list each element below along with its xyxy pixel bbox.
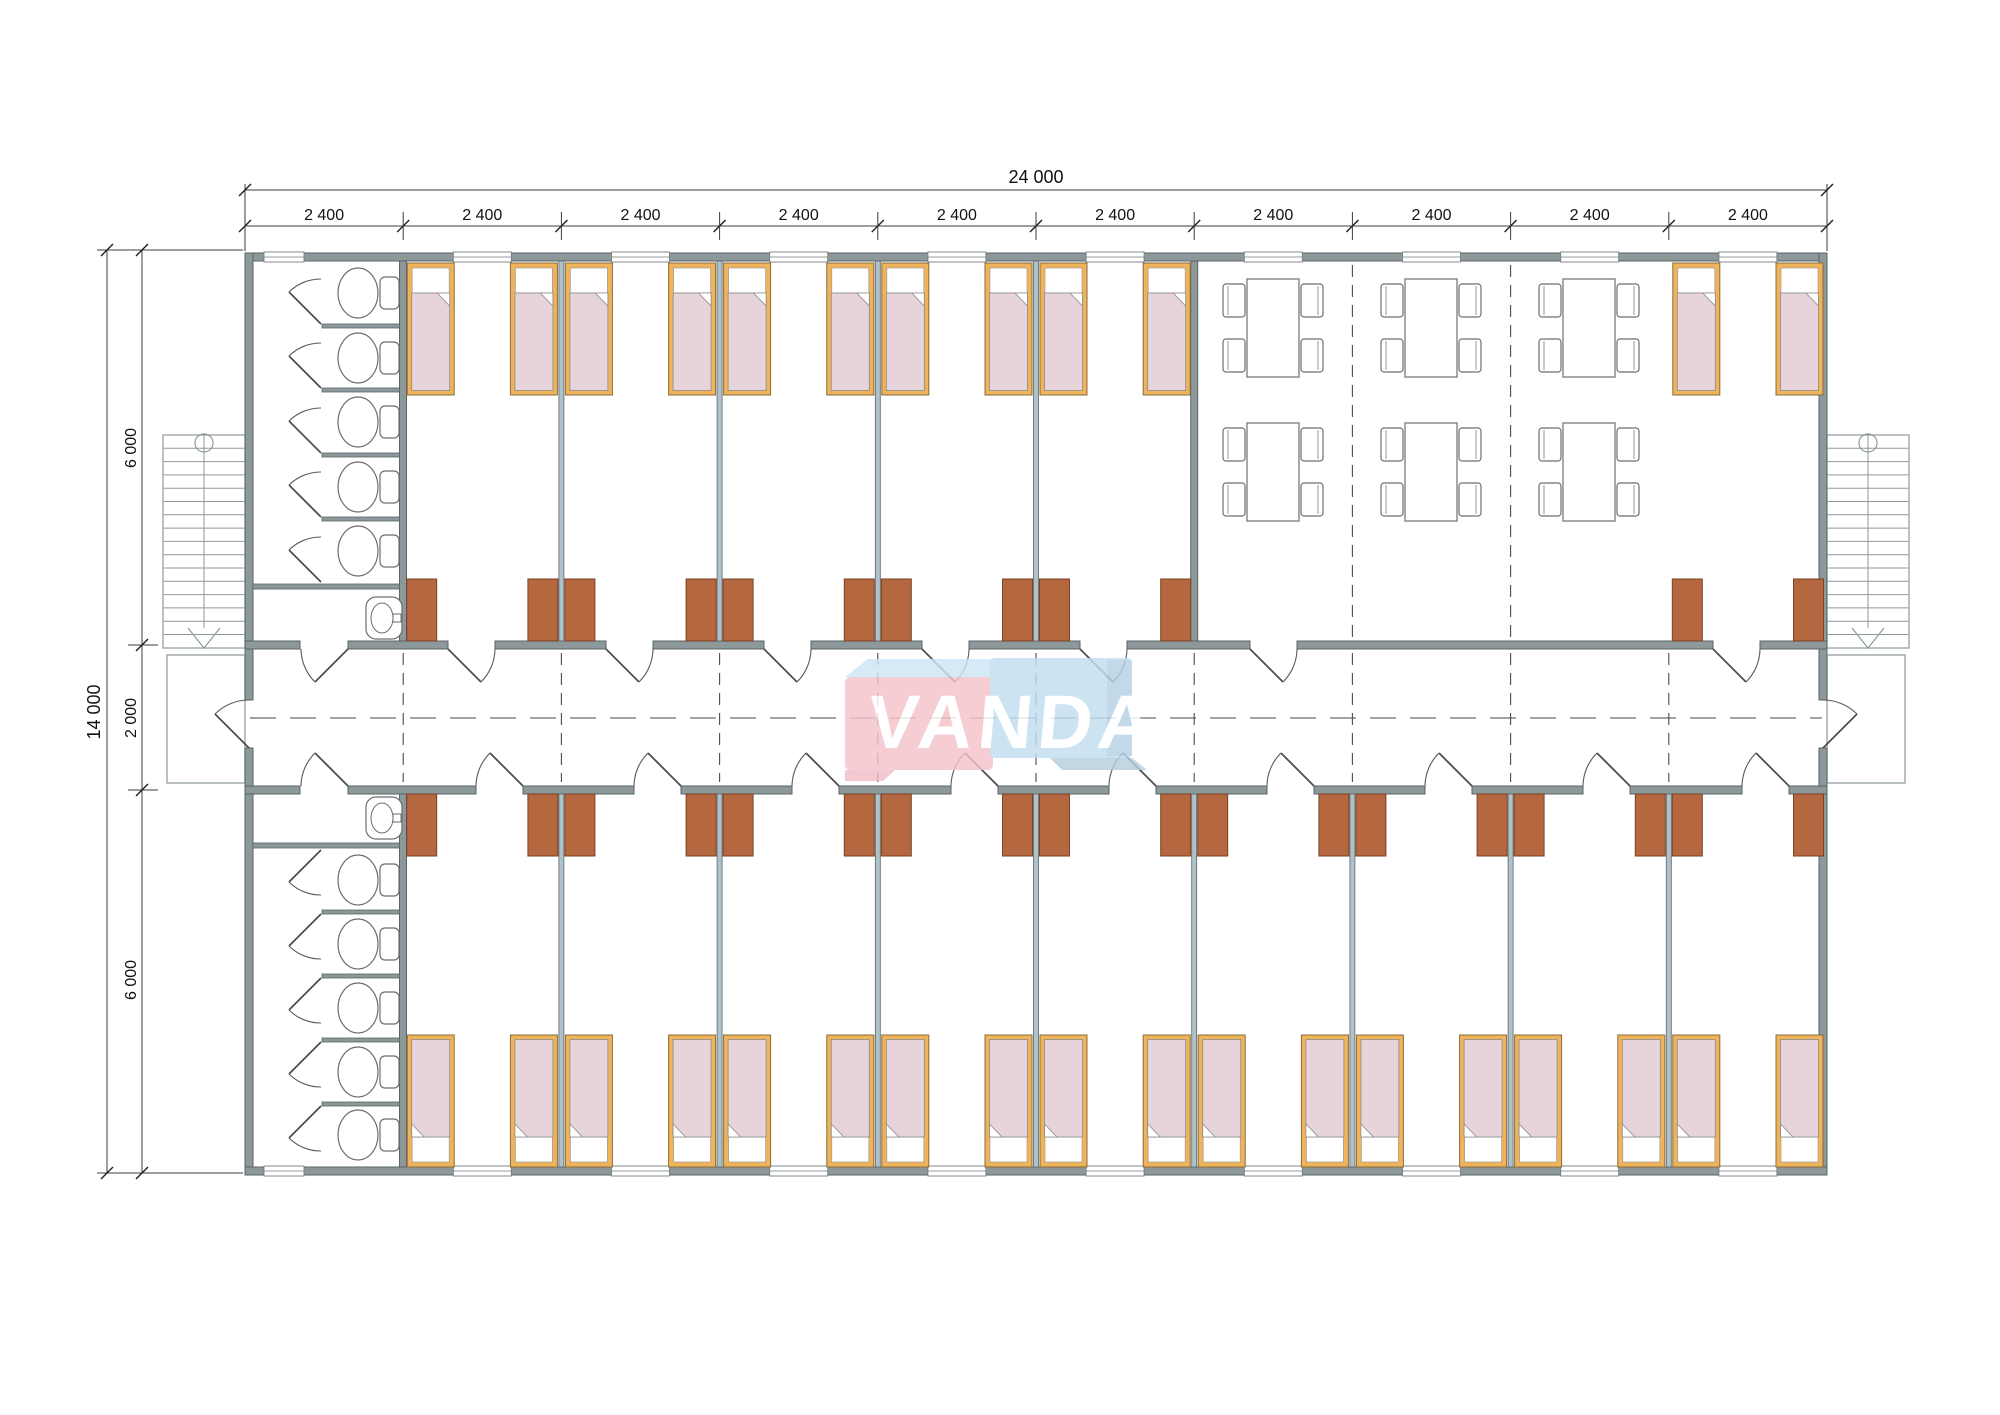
- bed: [1776, 263, 1823, 395]
- door-swing-arc: [1425, 753, 1439, 786]
- door-leaf: [490, 753, 523, 786]
- stall-wall: [253, 843, 400, 848]
- room-partition-bottom: [1034, 794, 1039, 1167]
- door-swing-arc: [289, 1010, 321, 1023]
- corridor-wall-bottom: [1314, 786, 1425, 794]
- wardrobe: [1794, 579, 1824, 641]
- corridor-wall-top: [495, 641, 606, 649]
- bed: [1673, 263, 1720, 395]
- door-leaf: [1823, 714, 1857, 748]
- wardrobe: [407, 579, 437, 641]
- outer-wall-left: [245, 748, 253, 1167]
- toilet: [338, 919, 399, 969]
- dining-table-set: [1539, 423, 1639, 521]
- wardrobe: [723, 579, 753, 641]
- corridor-wall-top: [1127, 641, 1250, 649]
- door-leaf: [1713, 649, 1746, 682]
- door-leaf: [289, 850, 321, 882]
- wardrobe: [1198, 794, 1228, 856]
- door-swing-arc: [1283, 649, 1297, 682]
- wardrobe: [1672, 579, 1702, 641]
- room-partition-top: [875, 261, 880, 641]
- door-leaf: [289, 421, 321, 453]
- corridor-wall-top: [653, 641, 764, 649]
- wardrobe: [844, 794, 874, 856]
- wardrobe: [565, 579, 595, 641]
- room-partition-bottom: [1508, 794, 1513, 1167]
- toilet: [338, 268, 399, 318]
- door-swing-arc: [634, 753, 648, 786]
- module-width-label: 2 400: [462, 207, 502, 224]
- stall-divider: [322, 453, 400, 457]
- wardrobe: [528, 794, 558, 856]
- door-swing-arc: [1267, 753, 1281, 786]
- toilet: [338, 397, 399, 447]
- room-partition-bottom: [1192, 794, 1197, 1167]
- toilet: [338, 526, 399, 576]
- bed: [1673, 1035, 1720, 1167]
- door-leaf: [289, 1042, 321, 1074]
- total-width-label: 24 000: [1008, 167, 1063, 187]
- door-leaf: [1281, 753, 1314, 786]
- door-leaf: [289, 550, 321, 582]
- toilet: [338, 1047, 399, 1097]
- bed: [1040, 1035, 1087, 1167]
- bed: [827, 1035, 874, 1167]
- logo-pink-tail: [845, 770, 895, 781]
- stall-wall: [253, 584, 400, 589]
- door-swing-arc: [301, 753, 315, 786]
- wardrobe: [407, 794, 437, 856]
- door-swing-arc: [289, 882, 321, 895]
- toilet: [338, 983, 399, 1033]
- logo-text: VANDA: [865, 680, 1162, 765]
- wardrobe: [844, 579, 874, 641]
- wardrobe: [881, 579, 911, 641]
- corridor-wall-bottom: [1472, 786, 1583, 794]
- stair-direction-arrow: [188, 628, 220, 648]
- wardrobe: [1161, 794, 1191, 856]
- outer-wall-left: [245, 253, 253, 700]
- module-width-label: 2 400: [1570, 207, 1610, 224]
- corridor-wall-top: [348, 641, 448, 649]
- door-swing-arc: [639, 649, 653, 682]
- bathroom-wall-top: [400, 261, 407, 641]
- stall-divider: [322, 1102, 400, 1106]
- door-swing-arc: [476, 753, 490, 786]
- door-leaf: [1250, 649, 1283, 682]
- wardrobe: [528, 579, 558, 641]
- door-swing-arc: [792, 753, 806, 786]
- bathroom-wall-bottom: [400, 794, 407, 1167]
- floor-plan-page: 24 000 14 000 6 000 2 000 6 000 2 4002 4…: [0, 0, 2000, 1415]
- door-leaf: [289, 1106, 321, 1138]
- corridor-wall-bottom: [998, 786, 1109, 794]
- total-height-label: 14 000: [84, 684, 104, 739]
- logo-pink-bevel: [845, 659, 992, 677]
- corridor-wall-top: [1760, 641, 1827, 649]
- door-swing-arc: [289, 472, 321, 485]
- door-leaf: [289, 914, 321, 946]
- stall-divider: [322, 974, 400, 978]
- door-swing-arc: [289, 343, 321, 356]
- upper-wing-label: 6 000: [123, 428, 140, 468]
- door-leaf: [289, 485, 321, 517]
- door-leaf: [448, 649, 481, 682]
- dining-table-set: [1223, 423, 1323, 521]
- module-width-label: 2 400: [1728, 207, 1768, 224]
- dining-table-set: [1223, 279, 1323, 377]
- dining-table-set: [1381, 423, 1481, 521]
- wardrobe: [686, 579, 716, 641]
- door-leaf: [289, 356, 321, 388]
- stall-divider: [322, 517, 400, 521]
- door-leaf: [315, 753, 348, 786]
- dining-wall: [1191, 261, 1198, 641]
- entrance-porch-left: [167, 655, 245, 783]
- corridor-wall-bottom: [681, 786, 792, 794]
- door-swing-arc: [1823, 700, 1857, 714]
- bed: [724, 263, 771, 395]
- toilet: [338, 462, 399, 512]
- lower-wing-label: 6 000: [123, 960, 140, 1000]
- door-swing-arc: [289, 279, 321, 292]
- bed: [1460, 1035, 1507, 1167]
- bed: [510, 263, 557, 395]
- wardrobe: [1161, 579, 1191, 641]
- door-leaf: [806, 753, 839, 786]
- door-leaf: [606, 649, 639, 682]
- door-swing-arc: [1746, 649, 1760, 682]
- door-swing-arc: [1583, 753, 1597, 786]
- corridor-wall-top: [245, 641, 300, 649]
- wardrobe: [1319, 794, 1349, 856]
- wardrobe: [1635, 794, 1665, 856]
- wardrobe: [1003, 579, 1033, 641]
- wardrobe: [1672, 794, 1702, 856]
- room-partition-top: [1034, 261, 1039, 641]
- entrance-porch-right: [1827, 655, 1905, 783]
- module-width-label: 2 400: [620, 207, 660, 224]
- bed: [407, 1035, 454, 1167]
- wardrobe: [1514, 794, 1544, 856]
- bed: [1040, 263, 1087, 395]
- toilet: [338, 855, 399, 905]
- wardrobe: [723, 794, 753, 856]
- module-width-label: 2 400: [1095, 207, 1135, 224]
- wardrobe: [1477, 794, 1507, 856]
- bed: [827, 263, 874, 395]
- door-leaf: [1439, 753, 1472, 786]
- sink: [366, 597, 402, 639]
- room-partition-top: [717, 261, 722, 641]
- bed: [565, 1035, 612, 1167]
- door-leaf: [215, 714, 249, 748]
- bed: [985, 1035, 1032, 1167]
- sanitary-fixtures: [338, 268, 402, 1160]
- room-partition-bottom: [717, 794, 722, 1167]
- room-partition-bottom: [559, 794, 564, 1167]
- wardrobe: [881, 794, 911, 856]
- door-swing-arc: [1742, 753, 1756, 786]
- bed: [724, 1035, 771, 1167]
- bed: [1776, 1035, 1823, 1167]
- room-partition-bottom: [1350, 794, 1355, 1167]
- bed: [407, 263, 454, 395]
- logo-watermark: VANDA: [845, 658, 1161, 781]
- door-swing-arc: [215, 700, 249, 714]
- bed: [669, 1035, 716, 1167]
- bed: [510, 1035, 557, 1167]
- bed: [1618, 1035, 1665, 1167]
- corridor-wall-bottom: [523, 786, 634, 794]
- door-swing-arc: [289, 946, 321, 959]
- toilet: [338, 1110, 399, 1160]
- stall-divider: [322, 1038, 400, 1042]
- door-swing-arc: [289, 537, 321, 550]
- dining-area: [1223, 279, 1639, 521]
- bed: [1515, 1035, 1562, 1167]
- wardrobe: [1356, 794, 1386, 856]
- dining-table-set: [1539, 279, 1639, 377]
- door-leaf: [1597, 753, 1630, 786]
- door-leaf: [289, 978, 321, 1010]
- door-swing-arc: [289, 1138, 321, 1151]
- corridor-wall-bottom: [839, 786, 951, 794]
- bed: [985, 263, 1032, 395]
- module-width-label: 2 400: [1411, 207, 1451, 224]
- stall-divider: [322, 324, 400, 328]
- stair-direction-arrow: [1852, 628, 1884, 648]
- wardrobe: [1040, 579, 1070, 641]
- door-swing-arc: [301, 649, 315, 682]
- corridor-wall-bottom: [1630, 786, 1742, 794]
- wardrobe: [565, 794, 595, 856]
- door-leaf: [648, 753, 681, 786]
- corridor-wall-top: [969, 641, 1080, 649]
- corridor-wall-top: [1297, 641, 1713, 649]
- bed: [1198, 1035, 1245, 1167]
- corridor-wall-bottom: [1156, 786, 1267, 794]
- bed: [1301, 1035, 1348, 1167]
- door-swing-arc: [289, 408, 321, 421]
- wardrobe: [686, 794, 716, 856]
- stall-divider: [322, 388, 400, 392]
- stall-divider: [322, 910, 400, 914]
- toilet: [338, 333, 399, 383]
- bed: [1143, 1035, 1190, 1167]
- bed: [1356, 1035, 1403, 1167]
- door-leaf: [1756, 753, 1789, 786]
- corridor-height-label: 2 000: [123, 698, 140, 738]
- wardrobe: [1794, 794, 1824, 856]
- dining-table-set: [1381, 279, 1481, 377]
- door-leaf: [315, 649, 348, 682]
- door-swing-arc: [797, 649, 811, 682]
- corridor-wall-bottom: [245, 786, 300, 794]
- room-partition-top: [559, 261, 564, 641]
- room-partition-bottom: [1666, 794, 1671, 1167]
- corridor-wall-bottom: [1789, 786, 1827, 794]
- door-swing-arc: [289, 1074, 321, 1087]
- door-swing-arc: [481, 649, 495, 682]
- bed: [565, 263, 612, 395]
- module-width-label: 2 400: [937, 207, 977, 224]
- sink: [366, 797, 402, 839]
- corridor-wall-top: [811, 641, 922, 649]
- floor-plan-canvas: 24 000 14 000 6 000 2 000 6 000 2 4002 4…: [0, 0, 2000, 1415]
- dimension-lines-left: 14 000 6 000 2 000 6 000: [84, 244, 243, 1179]
- module-width-label: 2 400: [304, 207, 344, 224]
- door-leaf: [764, 649, 797, 682]
- room-partition-bottom: [875, 794, 880, 1167]
- module-width-label: 2 400: [779, 207, 819, 224]
- door-leaf: [289, 292, 321, 324]
- bed: [1143, 263, 1190, 395]
- bed: [669, 263, 716, 395]
- wardrobe: [1003, 794, 1033, 856]
- module-width-label: 2 400: [1253, 207, 1293, 224]
- corridor-wall-bottom: [348, 786, 476, 794]
- bed: [882, 1035, 929, 1167]
- bed: [882, 263, 929, 395]
- wardrobe: [1040, 794, 1070, 856]
